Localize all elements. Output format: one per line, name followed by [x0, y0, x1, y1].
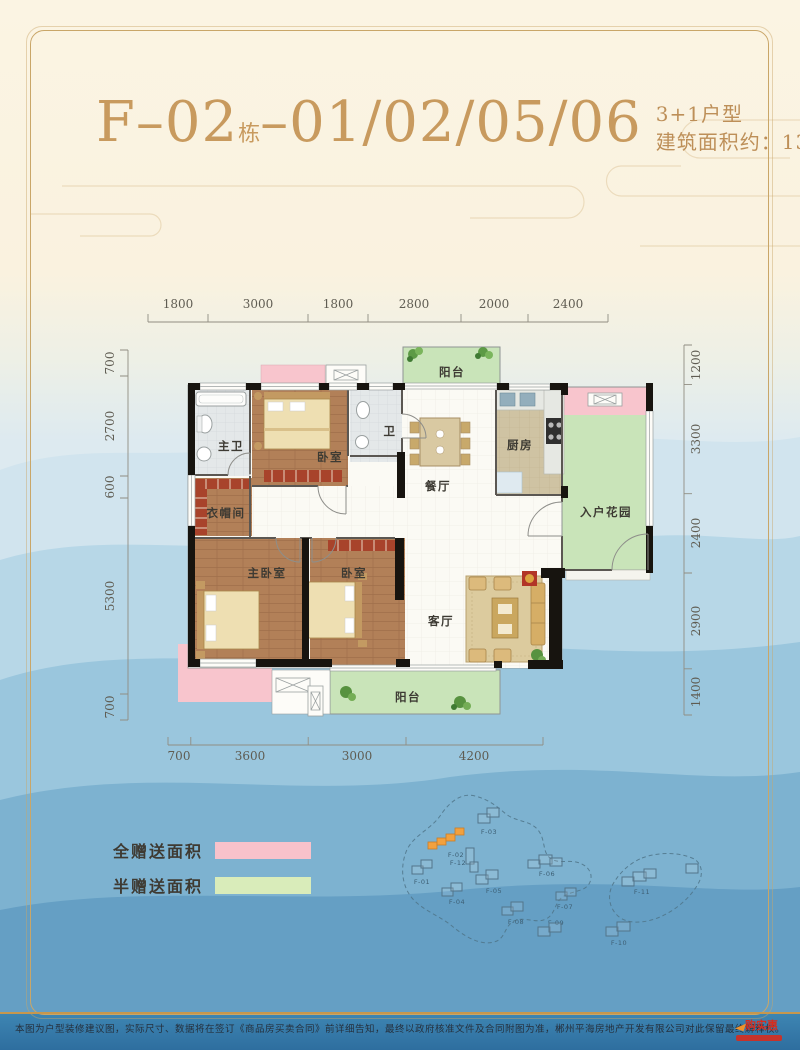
siteplan-building-f02-highlight: F-02 [428, 828, 464, 859]
dim-right-2: 2400 [689, 518, 703, 549]
room-label-balcony-top: 阳台 [439, 365, 465, 379]
footer-gold-rule [0, 1012, 800, 1014]
dim-bottom-2: 3000 [342, 749, 373, 763]
room-label-balcony-bottom: 阳台 [395, 690, 421, 704]
room-label-master-bedroom: 主卧室 [248, 566, 287, 580]
dim-top-1: 3000 [243, 297, 274, 311]
dim-top-0: 1800 [163, 297, 194, 311]
siteplan-building-f05: F-05 [476, 870, 502, 895]
room-label-master-bath: 主卫 [218, 439, 244, 453]
svg-text:F-02: F-02 [448, 851, 464, 859]
title-units: –01/02/05/06 [260, 90, 642, 155]
logo-bar [736, 1035, 782, 1041]
dim-top-5: 2400 [553, 297, 584, 311]
site-buildings: F-03 F-02 F-12 F-01 F-05 [412, 808, 698, 947]
dim-left-0: 700 [103, 352, 117, 375]
room-label-bedroom-top: 卧室 [317, 450, 343, 464]
title-dong: 栋 [238, 122, 260, 147]
dim-bottom-0: 700 [168, 749, 191, 763]
unit-info: 3+1户型 建筑面积约：135.12m² [656, 100, 800, 156]
siteplan-building-f11: F-11 [622, 869, 656, 896]
logo-text: 购实惠 [745, 1020, 778, 1031]
legend-half-gift-label: 半赠送面积 [113, 873, 203, 897]
dim-top-3: 2800 [399, 297, 430, 311]
room-label-dining: 餐厅 [424, 479, 451, 493]
legend-row-half-gift: 半赠送面积 [113, 873, 311, 897]
unit-area: 建筑面积约：135.12m² [656, 128, 800, 156]
siteplan-building-f08: F-08 [502, 902, 524, 926]
svg-text:F-08: F-08 [508, 918, 524, 926]
watermark-logo: 购实惠 [736, 1017, 796, 1041]
siteplan-building-f10: F-10 [606, 922, 630, 947]
room-label-kitchen: 厨房 [507, 438, 533, 452]
dim-bottom-3: 4200 [459, 749, 490, 763]
dim-left-1: 2700 [103, 411, 117, 442]
floor-plan: 1800 3000 1800 2800 2000 2400 700 2700 6… [100, 288, 720, 770]
title-block: F–02栋–01/02/05/06 3+1户型 建筑面积约：135.12m² [96, 94, 800, 156]
unit-title: F–02栋–01/02/05/06 [96, 94, 642, 153]
svg-text:F-06: F-06 [539, 870, 555, 878]
dim-left-4: 700 [103, 696, 117, 719]
dim-top-2: 1800 [323, 297, 354, 311]
dim-right-0: 1200 [689, 350, 703, 381]
unit-type: 3+1户型 [656, 100, 800, 128]
brochure-page: F–02栋–01/02/05/06 3+1户型 建筑面积约：135.12m² [0, 0, 800, 1050]
room-label-living: 客厅 [427, 614, 454, 628]
dim-top-4: 2000 [479, 297, 510, 311]
siteplan-building-f07: F-07 [556, 888, 576, 911]
svg-text:F-04: F-04 [449, 898, 465, 906]
svg-text:F-05: F-05 [486, 887, 502, 895]
dim-right-1: 3300 [689, 424, 703, 455]
svg-text:F-07: F-07 [557, 903, 573, 911]
siteplan-building-edge [686, 864, 698, 873]
dim-right-4: 1400 [689, 677, 703, 708]
svg-text:F-12: F-12 [450, 859, 466, 867]
dim-left-3: 5300 [103, 581, 117, 612]
svg-text:F-10: F-10 [611, 939, 627, 947]
legend-row-full-gift: 全赠送面积 [113, 838, 311, 862]
legend-half-gift-swatch [215, 877, 311, 894]
siteplan-building-f04: F-04 [442, 883, 465, 906]
title-building: F–02 [96, 90, 238, 155]
siteplan-building-f06: F-06 [528, 855, 562, 878]
dim-right-3: 2900 [689, 606, 703, 637]
dim-bottom-1: 3600 [235, 749, 266, 763]
legend: 全赠送面积 半赠送面积 [113, 838, 311, 908]
disclaimer-text: 本图为户型装修建议图，实际尺寸、数据将在签订《商品房买卖合同》前详细告知，最终以… [0, 1021, 800, 1035]
room-label-cloakroom: 衣帽间 [207, 506, 246, 520]
siteplan-building-f03: F-03 [478, 808, 499, 836]
room-label-bath: 卫 [384, 424, 397, 438]
siteplan-building-f01: F-01 [412, 860, 432, 886]
svg-text:F-01: F-01 [414, 878, 430, 886]
siteplan-building-f09: F-09 [538, 919, 564, 936]
legend-full-gift-swatch [215, 842, 311, 859]
room-label-entry-garden: 入户花园 [580, 505, 632, 519]
dim-left-2: 600 [103, 476, 117, 499]
site-plan: F-03 F-02 F-12 F-01 F-05 [390, 778, 710, 973]
svg-text:F-11: F-11 [634, 888, 650, 896]
legend-full-gift-label: 全赠送面积 [113, 838, 203, 862]
svg-text:F-03: F-03 [481, 828, 497, 836]
room-label-bedroom-second: 卧室 [341, 566, 367, 580]
